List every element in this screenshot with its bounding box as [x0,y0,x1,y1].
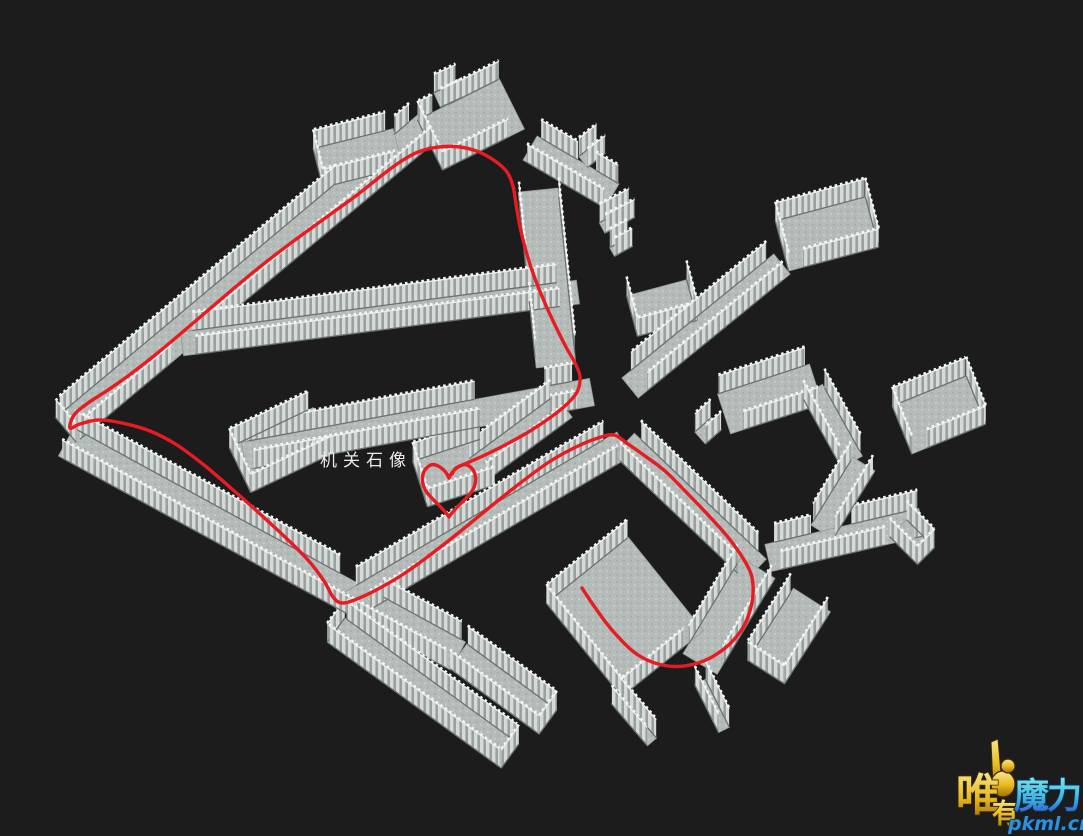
wall-corridor-west-up-L0-knobs [59,164,335,395]
watermark-site: pkml.cn [1007,813,1083,835]
watermark-brand: 魔力 [1014,777,1080,817]
wall-corridor-west-up-L0 [59,166,335,415]
maze-map: 机关石像 唯 有 魔力 pkml.cn [0,0,1083,836]
map-label-text: 机关石像 [320,451,412,471]
maze-walls [56,60,986,768]
wall-corridor-west-up-L0-cap [59,166,335,397]
mascot-head-icon [1001,759,1015,773]
screenshot-root: 机关石像 唯 有 魔力 pkml.cn [0,0,1083,836]
watermark-logo: 唯 有 魔力 pkml.cn [956,739,1083,835]
